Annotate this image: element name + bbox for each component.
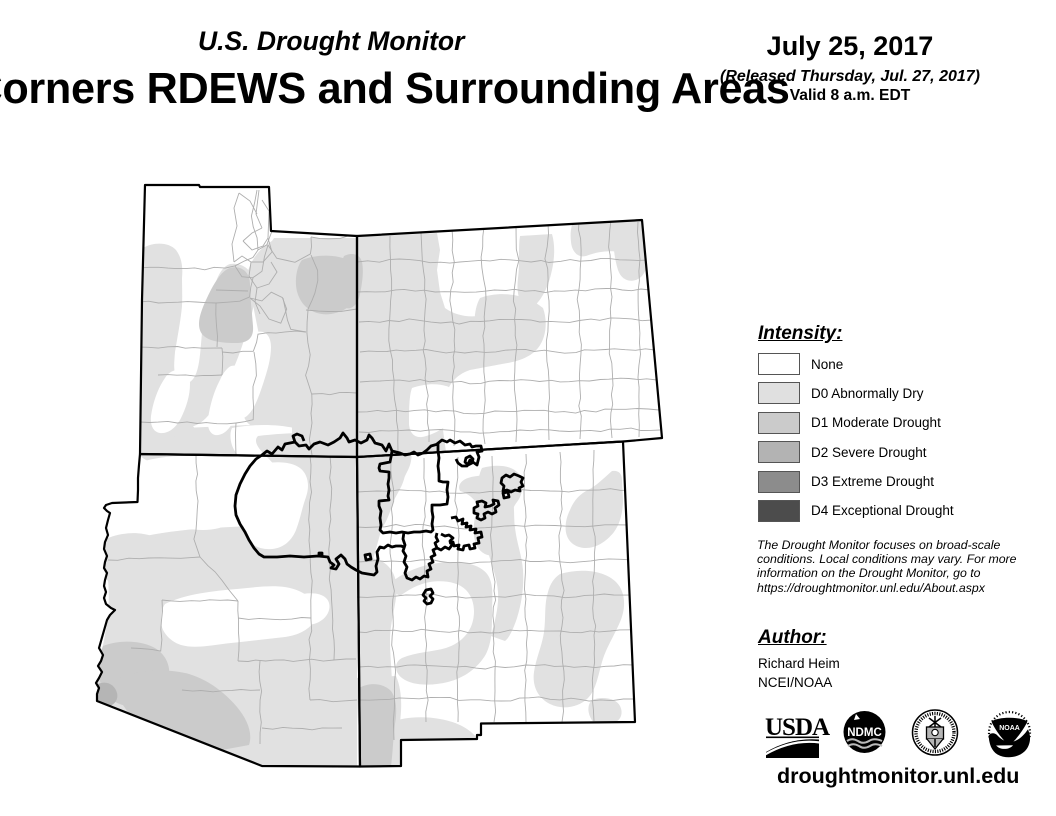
svg-text:NDMC: NDMC: [847, 727, 882, 739]
svg-text:NOAA: NOAA: [999, 725, 1020, 732]
